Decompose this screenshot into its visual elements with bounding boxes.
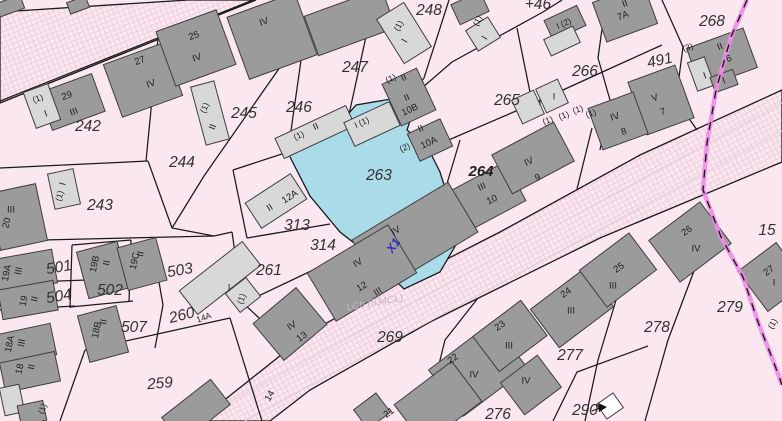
building-label: I bbox=[539, 98, 542, 109]
parcel-label-268: 268 bbox=[698, 13, 725, 30]
parcel-label-15: 15 bbox=[758, 222, 776, 239]
parcel-label-279: 279 bbox=[716, 299, 743, 316]
parcel-label-248: 248 bbox=[415, 2, 442, 19]
building-label: III bbox=[567, 306, 575, 317]
parcel-label-278: 278 bbox=[643, 319, 670, 336]
parcel-label-502: 502 bbox=[97, 282, 123, 299]
parcel-label-247: 247 bbox=[341, 59, 369, 76]
building-label: III bbox=[609, 281, 617, 292]
parcel-label-276: 276 bbox=[484, 406, 511, 421]
parcel-label-+46: +46 bbox=[525, 0, 552, 13]
parcel-label-313: 313 bbox=[284, 217, 310, 234]
building-label: IV bbox=[470, 370, 480, 381]
building-label: IV bbox=[522, 376, 532, 387]
parcel-label-266: 266 bbox=[571, 63, 598, 80]
parcel-label-259: 259 bbox=[145, 374, 174, 393]
building-label: I bbox=[553, 92, 556, 103]
parcel-label-261: 261 bbox=[255, 262, 282, 279]
parcel-label-244: 244 bbox=[168, 154, 195, 171]
parcel-label-507: 507 bbox=[121, 319, 148, 336]
parcel-label-265: 265 bbox=[493, 92, 520, 109]
parcel-label-264: 264 bbox=[467, 163, 494, 180]
building-label: I bbox=[773, 278, 776, 289]
building-label: IV bbox=[692, 244, 702, 255]
parcel-label-269: 269 bbox=[376, 329, 403, 346]
parcel-label-277: 277 bbox=[556, 347, 584, 364]
building-label: 18 bbox=[14, 363, 27, 376]
parcel-label-263: 263 bbox=[365, 167, 392, 184]
parcel-label-245: 245 bbox=[230, 105, 257, 122]
building-label: III bbox=[505, 341, 513, 352]
building-label: III bbox=[7, 205, 15, 216]
parcel-label-290: 290 bbox=[571, 402, 598, 419]
parcel-label-246: 246 bbox=[285, 99, 312, 116]
map-viewport[interactable]: 2422432442452462472482632642652662684913… bbox=[0, 0, 782, 421]
building-label: I bbox=[228, 283, 231, 294]
parcel-label-314: 314 bbox=[310, 237, 336, 254]
parcel-label-243: 243 bbox=[86, 197, 113, 214]
parcel-label-242: 242 bbox=[74, 118, 101, 135]
cadastral-map-canvas[interactable]: 2422432442452462472482632642652662684913… bbox=[0, 0, 782, 421]
